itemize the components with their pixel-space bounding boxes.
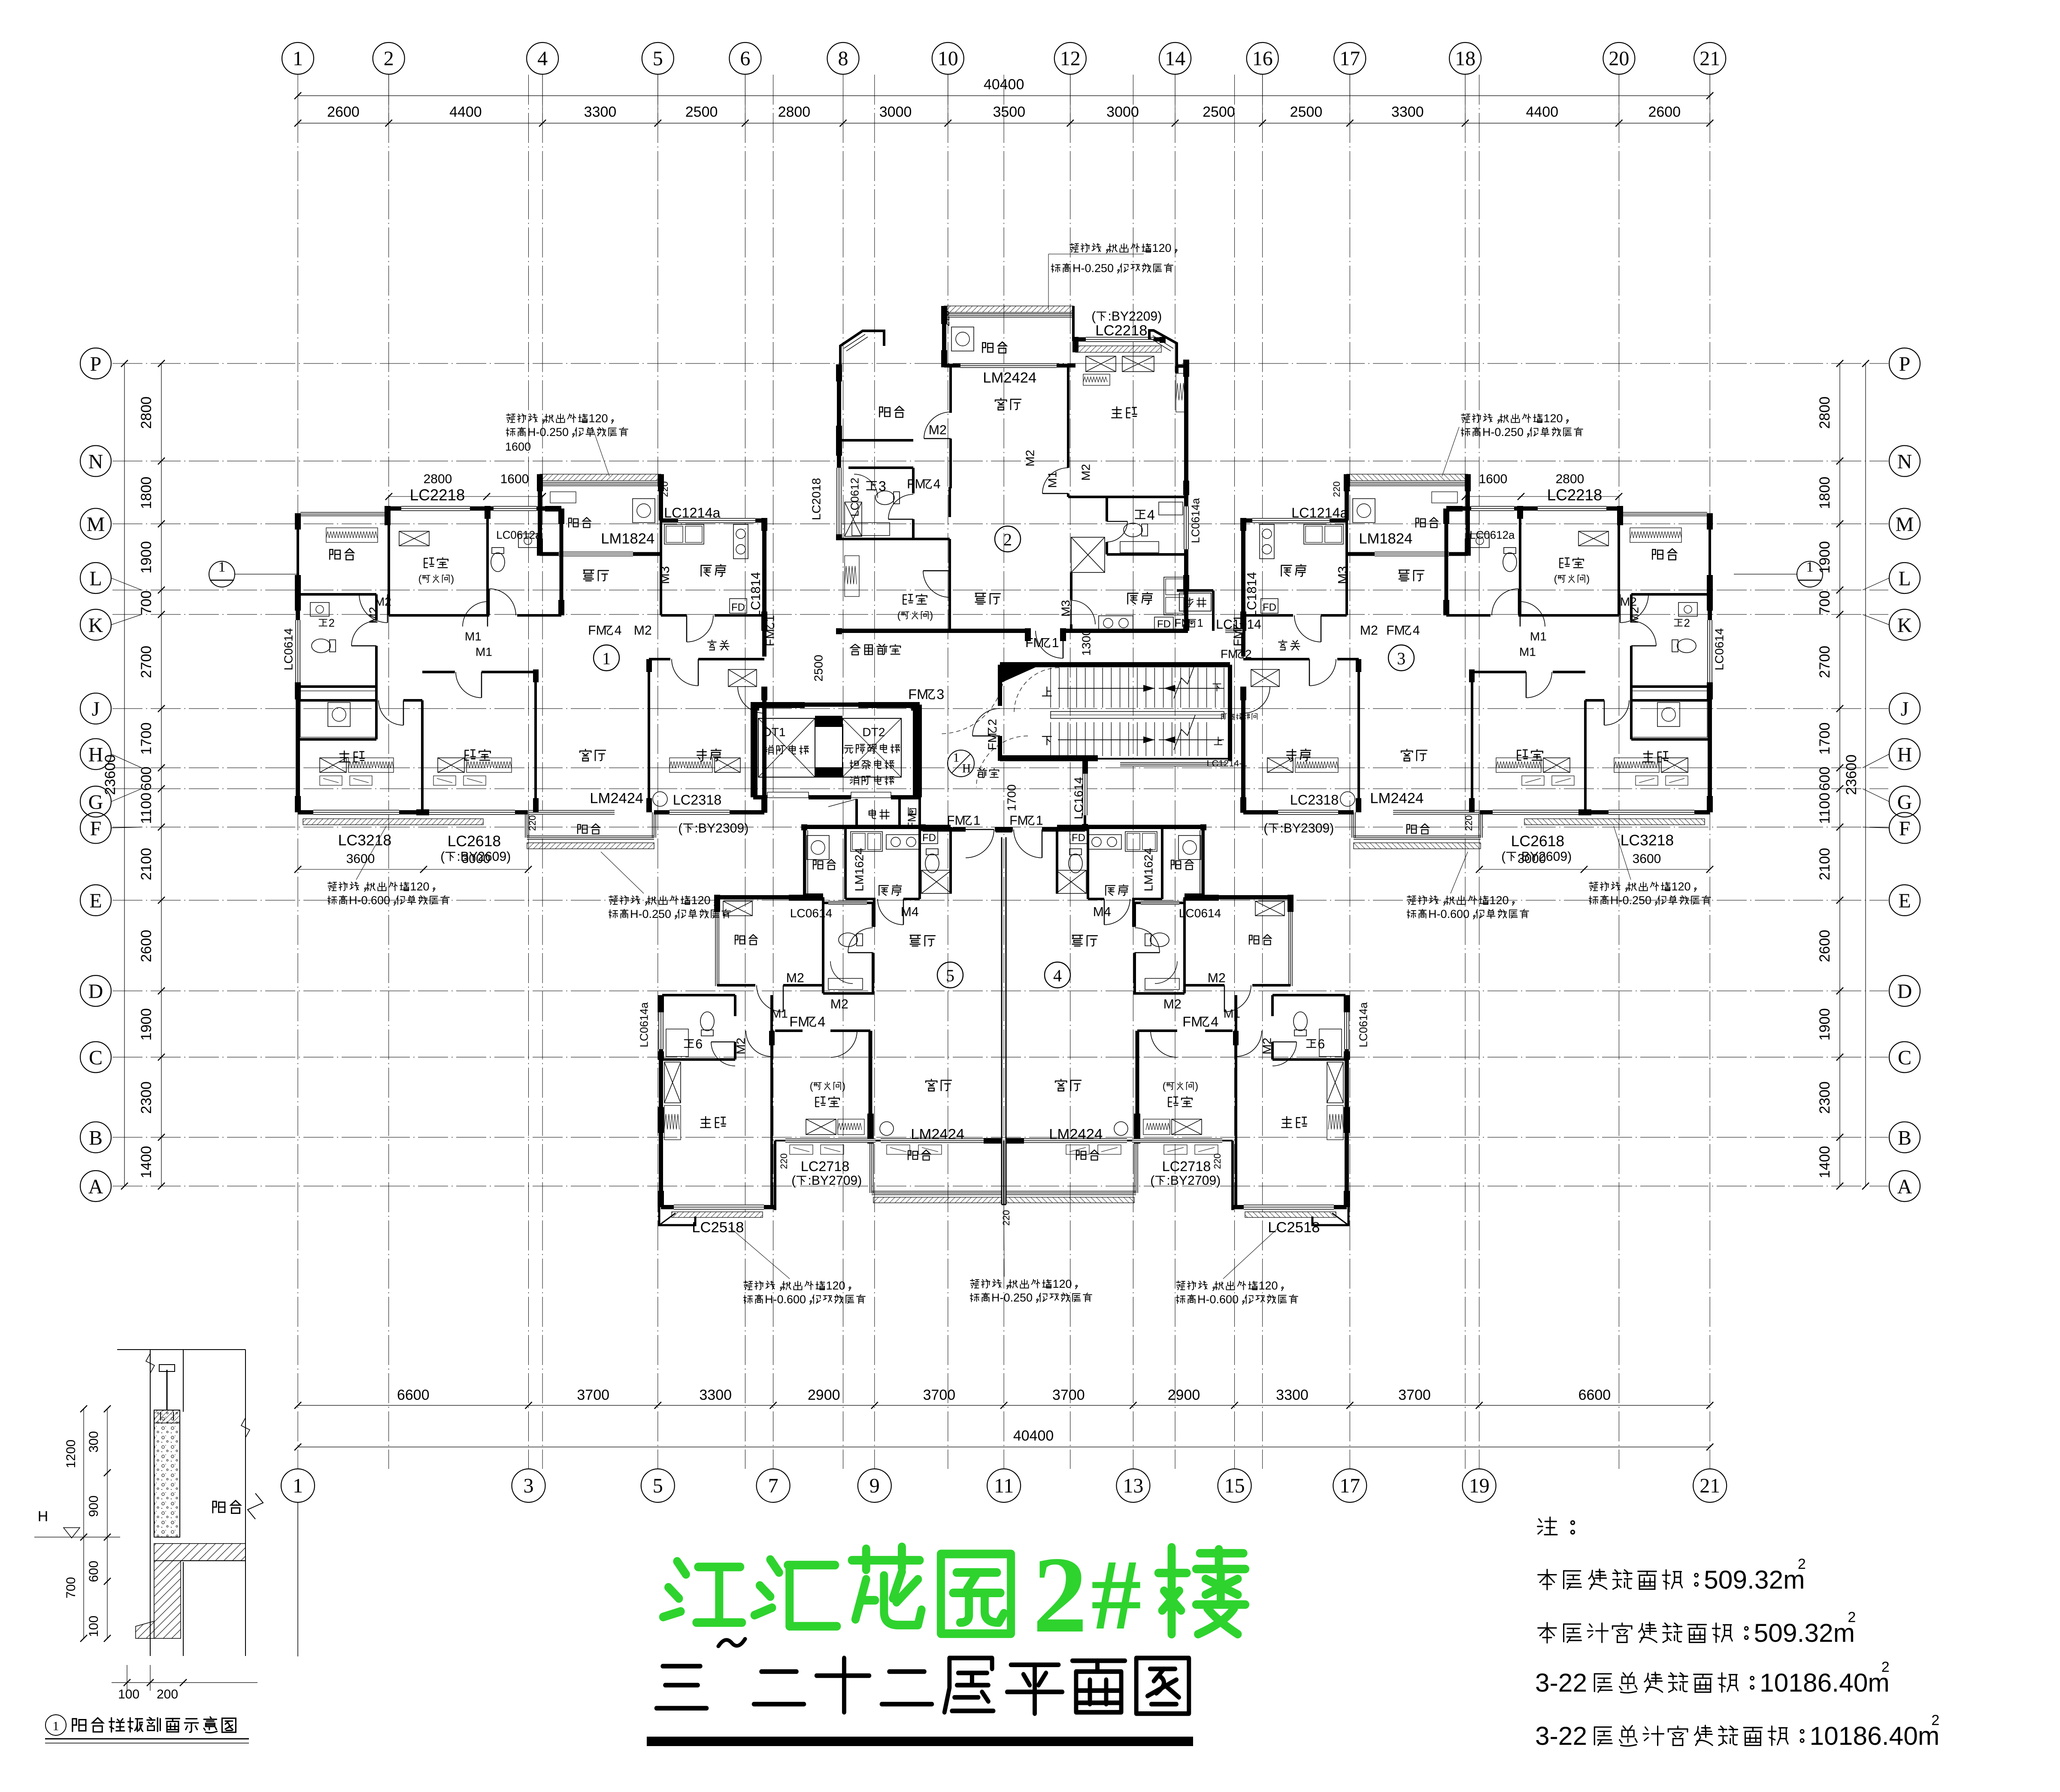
svg-text:F: F xyxy=(90,817,102,840)
svg-text:100: 100 xyxy=(87,1616,101,1637)
svg-text:H-0.250: H-0.250 xyxy=(991,1291,1033,1304)
svg-text:A: A xyxy=(88,1175,103,1198)
svg-text:1300: 1300 xyxy=(1079,629,1093,656)
svg-text:2: 2 xyxy=(1881,1659,1890,1675)
svg-text:6600: 6600 xyxy=(1578,1387,1611,1403)
svg-text::BY2309): :BY2309) xyxy=(1280,821,1334,835)
svg-text:1600: 1600 xyxy=(1479,472,1508,486)
svg-text:LC1214a: LC1214a xyxy=(1291,505,1348,521)
svg-text:15: 15 xyxy=(1224,1474,1245,1497)
svg-text:FD: FD xyxy=(1157,618,1171,630)
svg-text:LC0614: LC0614 xyxy=(282,628,295,670)
svg-text:21: 21 xyxy=(1699,1474,1720,1497)
svg-text:): ) xyxy=(451,573,454,585)
svg-text:H-0.250: H-0.250 xyxy=(630,908,671,920)
svg-text:1900: 1900 xyxy=(1817,1008,1833,1041)
svg-text:2: 2 xyxy=(1931,1712,1939,1728)
svg-text:LC2618: LC2618 xyxy=(448,832,501,850)
svg-text:FM: FM xyxy=(908,687,928,702)
svg-text:K: K xyxy=(88,614,103,637)
svg-text:M3: M3 xyxy=(1336,566,1350,584)
svg-text:2600: 2600 xyxy=(1648,104,1681,120)
svg-text:P: P xyxy=(90,353,102,375)
svg-text:2500: 2500 xyxy=(1290,104,1323,120)
svg-text:509.32m: 509.32m xyxy=(1754,1618,1855,1647)
svg-text:E: E xyxy=(89,890,102,912)
svg-text:H-0.600: H-0.600 xyxy=(1197,1293,1239,1306)
svg-text:1: 1 xyxy=(1052,636,1059,650)
svg-text:(: ( xyxy=(897,610,901,621)
svg-text:2800: 2800 xyxy=(1556,472,1584,486)
svg-text:4: 4 xyxy=(818,1014,825,1029)
svg-text:3500: 3500 xyxy=(993,104,1025,120)
svg-text:FM: FM xyxy=(1386,624,1405,638)
svg-text:M1: M1 xyxy=(1530,630,1547,643)
svg-text:1600: 1600 xyxy=(500,472,529,486)
svg-text:C: C xyxy=(89,1047,103,1069)
svg-text:FM: FM xyxy=(1221,647,1238,660)
svg-text:1700: 1700 xyxy=(138,722,154,755)
svg-text:4: 4 xyxy=(1147,507,1155,523)
svg-text:6: 6 xyxy=(740,47,750,70)
svg-text:2700: 2700 xyxy=(138,646,154,678)
svg-text:23600: 23600 xyxy=(102,754,118,795)
svg-text:4: 4 xyxy=(1053,966,1062,985)
svg-text:2600: 2600 xyxy=(327,104,360,120)
svg-text:H-0.250: H-0.250 xyxy=(1072,262,1114,275)
svg-text:FM: FM xyxy=(789,1014,809,1029)
svg-text:LC0614: LC0614 xyxy=(1179,906,1221,920)
svg-text:LM1824: LM1824 xyxy=(601,531,654,547)
svg-text:2900: 2900 xyxy=(1168,1387,1200,1403)
svg-text:F: F xyxy=(1899,817,1911,840)
svg-text:): ) xyxy=(930,610,933,621)
svg-text:FM: FM xyxy=(1182,1014,1203,1029)
svg-text:120: 120 xyxy=(1053,1277,1072,1290)
svg-text:200: 200 xyxy=(157,1687,178,1701)
svg-text:13: 13 xyxy=(1123,1474,1143,1497)
svg-text:3700: 3700 xyxy=(1052,1387,1085,1403)
svg-text:220: 220 xyxy=(527,815,538,831)
svg-text:3: 3 xyxy=(879,478,886,494)
svg-text:4: 4 xyxy=(933,477,941,491)
svg-text:1: 1 xyxy=(218,559,226,575)
svg-text:1800: 1800 xyxy=(138,477,154,509)
svg-text:3000: 3000 xyxy=(462,852,491,866)
svg-text:M2: M2 xyxy=(1620,595,1637,608)
svg-text:FM: FM xyxy=(947,814,966,828)
svg-text:120: 120 xyxy=(691,894,711,907)
svg-text:2800: 2800 xyxy=(1817,397,1833,429)
svg-text:M2: M2 xyxy=(830,997,848,1011)
svg-text:LC0614a: LC0614a xyxy=(639,1002,651,1047)
svg-text:B: B xyxy=(1898,1126,1912,1149)
svg-text:1200: 1200 xyxy=(64,1440,78,1468)
svg-text:M2: M2 xyxy=(1627,607,1641,624)
svg-text:2: 2 xyxy=(1245,647,1252,660)
svg-text:120: 120 xyxy=(826,1279,845,1292)
svg-text:4: 4 xyxy=(1413,624,1420,638)
svg-text:): ) xyxy=(842,1081,845,1092)
svg-text:10186.40m: 10186.40m xyxy=(1810,1721,1940,1750)
svg-text:600: 600 xyxy=(1817,766,1833,791)
svg-text:L: L xyxy=(1898,567,1911,590)
svg-text:10186.40m: 10186.40m xyxy=(1760,1668,1890,1697)
svg-text:FM: FM xyxy=(588,624,607,638)
svg-text:(: ( xyxy=(1163,1081,1166,1092)
svg-text:H: H xyxy=(1897,743,1912,766)
svg-text:1: 1 xyxy=(53,1719,59,1733)
svg-text:1: 1 xyxy=(1806,559,1814,575)
svg-text:120: 120 xyxy=(1152,242,1172,254)
svg-text:DT2: DT2 xyxy=(862,725,885,739)
svg-text:(: ( xyxy=(810,1081,813,1092)
svg-text:4400: 4400 xyxy=(1526,104,1558,120)
svg-text:40400: 40400 xyxy=(1013,1428,1054,1444)
svg-text:C: C xyxy=(1898,1047,1912,1069)
svg-text:(: ( xyxy=(791,1174,796,1188)
svg-text:2: 2 xyxy=(1003,530,1012,549)
svg-text:100: 100 xyxy=(118,1687,139,1701)
svg-text:#: # xyxy=(1091,1539,1142,1650)
svg-text:1: 1 xyxy=(973,814,981,828)
svg-text:14: 14 xyxy=(1165,47,1185,70)
svg-text:1: 1 xyxy=(953,751,960,765)
svg-text:1900: 1900 xyxy=(138,541,154,574)
svg-text:LC2218: LC2218 xyxy=(1547,486,1603,504)
svg-text:9: 9 xyxy=(869,1474,880,1497)
svg-text:220: 220 xyxy=(1331,481,1342,497)
svg-text::BY2309): :BY2309) xyxy=(694,821,748,835)
svg-text:17: 17 xyxy=(1339,47,1360,70)
svg-text:M1: M1 xyxy=(1224,1007,1240,1020)
svg-text:D: D xyxy=(88,980,103,1003)
svg-text:509.32m: 509.32m xyxy=(1704,1565,1805,1594)
svg-text:2100: 2100 xyxy=(1817,848,1833,881)
svg-text:FD: FD xyxy=(731,602,745,613)
svg-text:600: 600 xyxy=(138,766,154,791)
svg-text:2300: 2300 xyxy=(138,1081,154,1114)
svg-text::BY2209): :BY2209) xyxy=(1108,309,1162,324)
svg-text::BY2709): :BY2709) xyxy=(808,1174,862,1188)
svg-text:1700: 1700 xyxy=(1817,722,1833,755)
svg-text:H: H xyxy=(962,762,971,775)
svg-text:LM1624: LM1624 xyxy=(1142,848,1155,892)
svg-text:23600: 23600 xyxy=(1843,754,1860,795)
svg-text:LM2424: LM2424 xyxy=(911,1126,964,1143)
svg-text:3300: 3300 xyxy=(584,104,617,120)
svg-text:2500: 2500 xyxy=(812,655,825,682)
svg-text:M2: M2 xyxy=(1260,1038,1273,1054)
svg-text:20: 20 xyxy=(1609,47,1629,70)
svg-text:FM: FM xyxy=(1009,814,1028,828)
svg-text:2900: 2900 xyxy=(808,1387,840,1403)
svg-text:120: 120 xyxy=(410,880,430,893)
svg-text:3000: 3000 xyxy=(1106,104,1139,120)
svg-text:(: ( xyxy=(1554,573,1557,585)
svg-text:7: 7 xyxy=(768,1474,779,1497)
svg-text:H-0.250: H-0.250 xyxy=(1482,426,1524,439)
svg-text:M1: M1 xyxy=(1519,645,1536,658)
svg-text:3300: 3300 xyxy=(1391,104,1424,120)
svg-text:(: ( xyxy=(440,850,445,864)
svg-text:LC2518: LC2518 xyxy=(692,1220,744,1236)
svg-text:3000: 3000 xyxy=(879,104,912,120)
svg-text:220: 220 xyxy=(1212,1153,1223,1169)
svg-text:2100: 2100 xyxy=(138,848,154,881)
svg-text:LM1624: LM1624 xyxy=(852,848,866,892)
svg-text:1: 1 xyxy=(293,47,303,70)
svg-text:FM: FM xyxy=(1025,636,1044,650)
svg-text:3600: 3600 xyxy=(1633,852,1661,866)
svg-text:FD: FD xyxy=(1263,602,1276,613)
svg-text:M2: M2 xyxy=(634,624,652,638)
svg-text:8: 8 xyxy=(838,47,848,70)
svg-text:120: 120 xyxy=(1544,412,1563,425)
svg-text:(: ( xyxy=(418,573,422,585)
svg-text:): ) xyxy=(1195,1081,1198,1092)
svg-text:LC1814: LC1814 xyxy=(1245,572,1259,618)
svg-text:LC2718: LC2718 xyxy=(1162,1159,1211,1174)
svg-text:17: 17 xyxy=(1339,1474,1360,1497)
svg-text:LC0612: LC0612 xyxy=(849,478,861,517)
svg-text:LC0614a: LC0614a xyxy=(1358,1002,1370,1047)
svg-text:FD: FD xyxy=(1072,832,1085,844)
svg-text:2: 2 xyxy=(384,47,394,70)
svg-text:120: 120 xyxy=(1259,1279,1278,1292)
svg-text:3: 3 xyxy=(936,687,944,702)
svg-text:LC2618: LC2618 xyxy=(1511,832,1565,850)
svg-text:H: H xyxy=(38,1508,48,1525)
svg-text:M2: M2 xyxy=(1208,971,1226,985)
svg-text:1: 1 xyxy=(1197,618,1203,630)
svg-text:M3: M3 xyxy=(658,566,672,584)
svg-text:M1: M1 xyxy=(465,630,482,643)
svg-text:LC0614: LC0614 xyxy=(790,906,832,920)
svg-text:LM2424: LM2424 xyxy=(590,790,643,807)
svg-text:G: G xyxy=(1897,791,1912,814)
svg-text:2: 2 xyxy=(985,719,999,726)
svg-text:18: 18 xyxy=(1455,47,1475,70)
svg-text:LC2218: LC2218 xyxy=(410,486,465,504)
svg-text:H: H xyxy=(88,743,103,766)
svg-text:L: L xyxy=(89,567,102,590)
svg-text:3700: 3700 xyxy=(923,1387,956,1403)
svg-text:A: A xyxy=(1897,1175,1912,1198)
svg-text:220: 220 xyxy=(1463,815,1474,831)
svg-text:E: E xyxy=(1898,890,1911,912)
svg-text:700: 700 xyxy=(64,1577,78,1598)
svg-text:N: N xyxy=(1897,450,1912,473)
svg-text:LC1614: LC1614 xyxy=(1072,777,1085,819)
svg-text:2: 2 xyxy=(1684,618,1690,630)
svg-text:M2: M2 xyxy=(786,971,804,985)
svg-text:16: 16 xyxy=(1252,47,1273,70)
svg-text:2500: 2500 xyxy=(1203,104,1235,120)
svg-text:6: 6 xyxy=(695,1037,703,1051)
svg-text:K: K xyxy=(1897,614,1912,637)
svg-text:N: N xyxy=(88,450,103,473)
svg-text:1: 1 xyxy=(602,649,611,668)
svg-text:120: 120 xyxy=(1672,880,1691,893)
svg-text:(: ( xyxy=(1091,309,1096,324)
svg-text:(: ( xyxy=(1501,850,1506,864)
svg-text:600: 600 xyxy=(87,1561,101,1582)
svg-text:G: G xyxy=(88,791,103,814)
svg-text:3700: 3700 xyxy=(1398,1387,1431,1403)
svg-text:2: 2 xyxy=(1033,1535,1088,1656)
svg-text:2: 2 xyxy=(329,618,335,630)
svg-text:P: P xyxy=(1899,353,1911,375)
svg-text:220: 220 xyxy=(1001,1210,1012,1226)
svg-text:B: B xyxy=(89,1126,103,1149)
svg-text:DT1: DT1 xyxy=(763,725,785,739)
svg-text:FM: FM xyxy=(907,477,926,491)
svg-text:21: 21 xyxy=(1699,47,1720,70)
svg-text:FD: FD xyxy=(922,832,936,844)
svg-text:LM2424: LM2424 xyxy=(1049,1126,1103,1143)
svg-text:700: 700 xyxy=(138,590,154,615)
svg-text:LC0614: LC0614 xyxy=(1712,628,1726,670)
svg-text:1: 1 xyxy=(1036,814,1043,828)
svg-text:40400: 40400 xyxy=(984,76,1024,93)
svg-text:120: 120 xyxy=(1490,894,1509,907)
svg-text:11: 11 xyxy=(994,1474,1014,1497)
svg-text:LC2518: LC2518 xyxy=(1268,1220,1320,1236)
svg-text:2700: 2700 xyxy=(1817,646,1833,678)
svg-text:5: 5 xyxy=(653,1474,663,1497)
svg-text:3-22: 3-22 xyxy=(1535,1721,1587,1750)
svg-text:2600: 2600 xyxy=(1817,930,1833,963)
svg-text:LC2718: LC2718 xyxy=(801,1159,849,1174)
svg-text:H-0.600: H-0.600 xyxy=(349,894,390,907)
svg-text:3300: 3300 xyxy=(1276,1387,1309,1403)
svg-text:5: 5 xyxy=(653,47,663,70)
svg-text:M2: M2 xyxy=(929,423,947,437)
svg-text:LC2318: LC2318 xyxy=(1290,792,1339,808)
svg-text:6: 6 xyxy=(1318,1037,1325,1051)
svg-text:4400: 4400 xyxy=(449,104,482,120)
svg-text:LM1824: LM1824 xyxy=(1359,531,1412,547)
svg-text:6600: 6600 xyxy=(397,1387,430,1403)
svg-text:M2: M2 xyxy=(1163,997,1181,1011)
svg-text:1400: 1400 xyxy=(138,1146,154,1178)
svg-text:M3: M3 xyxy=(1059,600,1072,617)
svg-text:M: M xyxy=(1896,513,1914,536)
svg-text:3700: 3700 xyxy=(577,1387,609,1403)
svg-text:220: 220 xyxy=(779,1153,789,1169)
svg-text:1: 1 xyxy=(763,615,776,622)
svg-text:1: 1 xyxy=(293,1474,303,1497)
svg-text:LC0612a: LC0612a xyxy=(1469,530,1515,542)
svg-text:M1: M1 xyxy=(771,1007,788,1020)
svg-text:220: 220 xyxy=(659,481,670,497)
svg-text:): ) xyxy=(1586,573,1590,585)
svg-text:3-22: 3-22 xyxy=(1535,1668,1587,1697)
svg-text:M1: M1 xyxy=(476,645,492,658)
svg-text:M2: M2 xyxy=(1360,624,1378,638)
svg-text:10: 10 xyxy=(938,47,958,70)
svg-text:LC2318: LC2318 xyxy=(673,792,721,808)
svg-text:4: 4 xyxy=(537,47,548,70)
svg-text:900: 900 xyxy=(87,1495,101,1517)
svg-text:700: 700 xyxy=(1817,590,1833,615)
svg-text:300: 300 xyxy=(87,1431,101,1453)
svg-text:LC2018: LC2018 xyxy=(809,478,823,520)
svg-text:LC3218: LC3218 xyxy=(338,832,392,849)
svg-text:M4: M4 xyxy=(1093,905,1111,919)
svg-text:LC1214a: LC1214a xyxy=(664,505,721,521)
svg-text:H-0.250: H-0.250 xyxy=(1610,894,1651,907)
svg-text:19: 19 xyxy=(1469,1474,1490,1497)
svg-text:M1: M1 xyxy=(1045,471,1059,488)
svg-text:2300: 2300 xyxy=(1817,1081,1833,1114)
svg-text:M2: M2 xyxy=(367,607,380,624)
svg-text:3: 3 xyxy=(1397,649,1406,668)
svg-text:1700: 1700 xyxy=(1005,784,1018,811)
svg-text:LC1814: LC1814 xyxy=(749,572,763,618)
svg-text:LC0614a: LC0614a xyxy=(1190,498,1202,543)
svg-text:2600: 2600 xyxy=(138,930,154,963)
svg-text:12: 12 xyxy=(1060,47,1081,70)
svg-text:1800: 1800 xyxy=(1817,477,1833,509)
svg-text:D: D xyxy=(1897,980,1912,1003)
svg-text:2800: 2800 xyxy=(778,104,811,120)
svg-text:FM: FM xyxy=(985,733,999,751)
svg-text:LC3218: LC3218 xyxy=(1621,832,1674,849)
svg-text:J: J xyxy=(92,698,100,720)
svg-text:1400: 1400 xyxy=(1817,1146,1833,1178)
svg-text:120: 120 xyxy=(589,412,608,425)
svg-text:2: 2 xyxy=(1848,1609,1856,1626)
svg-text:H-0.600: H-0.600 xyxy=(765,1293,806,1306)
svg-text::BY2709): :BY2709) xyxy=(1166,1174,1221,1188)
svg-text:LC2218: LC2218 xyxy=(1095,323,1147,339)
svg-text:4: 4 xyxy=(1211,1014,1218,1029)
svg-text:2800: 2800 xyxy=(138,397,154,429)
svg-text:LM2424: LM2424 xyxy=(1370,790,1424,807)
svg-text:(: ( xyxy=(678,821,682,835)
svg-text:3300: 3300 xyxy=(699,1387,732,1403)
svg-text:5: 5 xyxy=(946,966,954,985)
svg-text:1900: 1900 xyxy=(138,1008,154,1041)
svg-text:2800: 2800 xyxy=(424,472,452,486)
svg-text:M2: M2 xyxy=(1023,450,1036,466)
svg-text:H-0.250: H-0.250 xyxy=(527,426,569,439)
svg-text:1100: 1100 xyxy=(1817,793,1833,824)
svg-text:M2: M2 xyxy=(734,1038,747,1054)
svg-text:(: ( xyxy=(1150,1174,1154,1188)
svg-text:M4: M4 xyxy=(901,905,919,919)
svg-text:LC1014: LC1014 xyxy=(1216,618,1261,632)
svg-text:2: 2 xyxy=(1798,1556,1806,1572)
svg-text:M: M xyxy=(87,513,105,536)
svg-text:1100: 1100 xyxy=(138,793,154,824)
svg-text:3000: 3000 xyxy=(1518,852,1546,866)
svg-text:LC1214-1: LC1214-1 xyxy=(1207,758,1248,769)
svg-text:4: 4 xyxy=(615,624,622,638)
svg-text:M2: M2 xyxy=(375,595,391,608)
svg-text:1600: 1600 xyxy=(505,440,531,453)
svg-text:1900: 1900 xyxy=(1817,541,1833,574)
svg-text:2500: 2500 xyxy=(685,104,718,120)
svg-text:(: ( xyxy=(1263,821,1268,835)
svg-text:FM: FM xyxy=(763,629,776,647)
svg-text:3: 3 xyxy=(524,1474,534,1497)
svg-text:M2: M2 xyxy=(1079,464,1092,481)
svg-text:LC0612a: LC0612a xyxy=(496,530,542,542)
svg-text:H-0.600: H-0.600 xyxy=(1428,908,1469,920)
